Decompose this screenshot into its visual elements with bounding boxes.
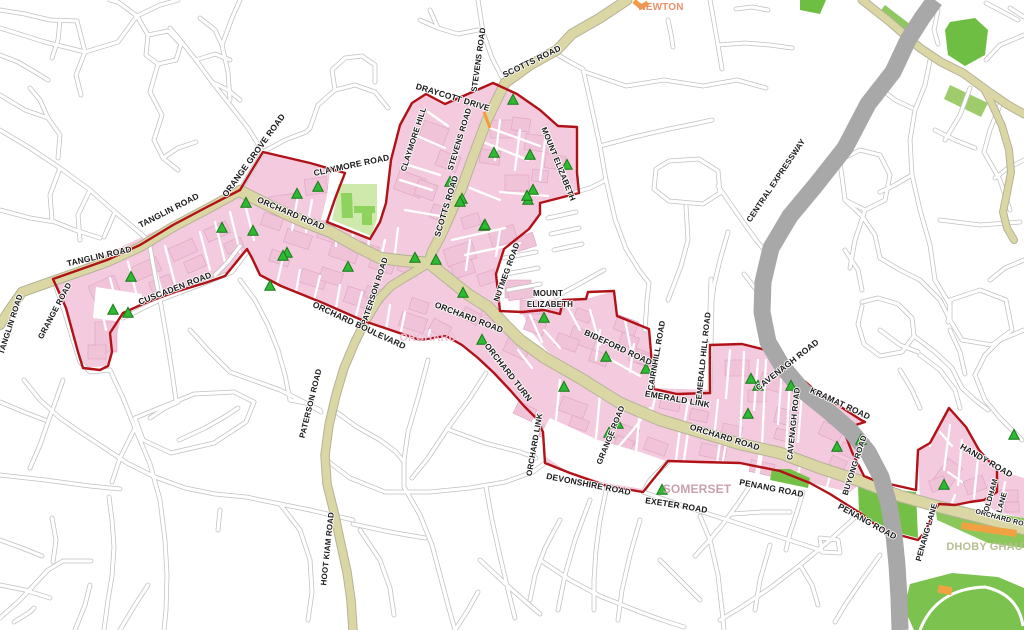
svg-text:ORCHARD: ORCHARD <box>399 332 456 344</box>
svg-text:NEWTON: NEWTON <box>638 2 683 13</box>
svg-text:DHOBY GHAUT: DHOBY GHAUT <box>946 541 1024 553</box>
svg-text:SOMERSET: SOMERSET <box>663 482 732 496</box>
svg-text:MOUNT: MOUNT <box>533 289 563 298</box>
svg-text:ELIZABETH: ELIZABETH <box>527 300 573 309</box>
